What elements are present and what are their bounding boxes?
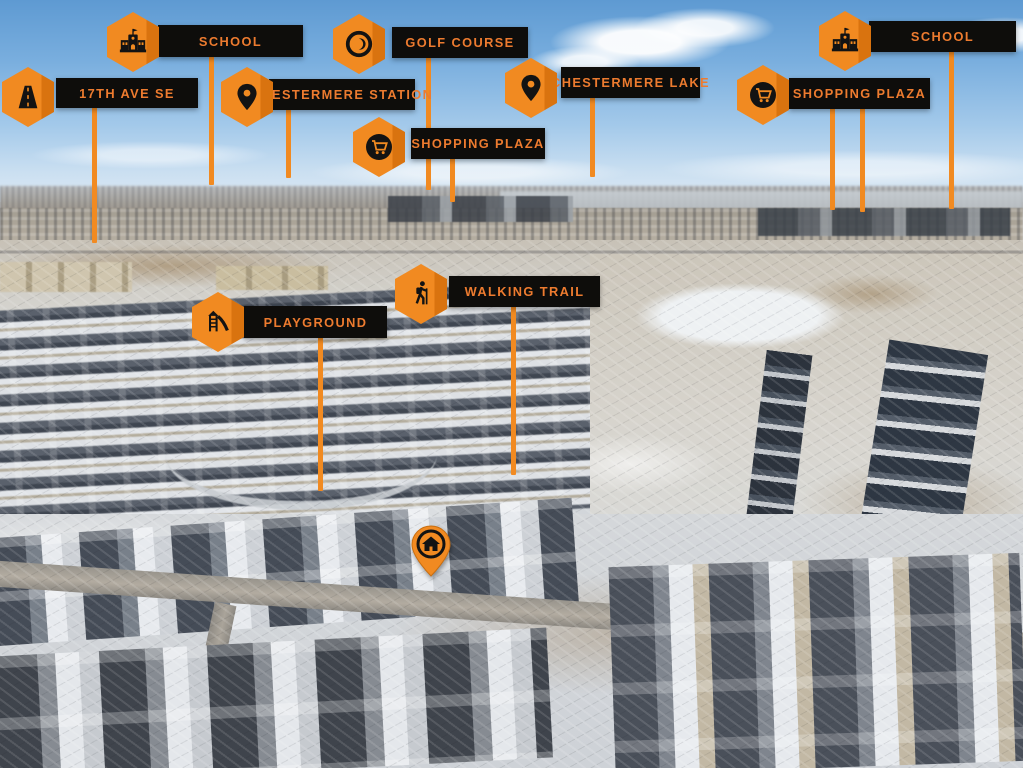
label-text: CHESTERMERE STATION <box>251 87 434 102</box>
label-golf-course: GOLF COURSE <box>392 27 528 58</box>
label-shopping-plaza-mid: SHOPPING PLAZA <box>411 128 545 159</box>
leader-line <box>511 305 516 475</box>
leader-line <box>318 336 323 491</box>
label-shopping-plaza-right: SHOPPING PLAZA <box>789 78 930 109</box>
leader-line <box>860 107 865 212</box>
curved-street <box>165 398 437 510</box>
label-text: SHOPPING PLAZA <box>411 136 544 151</box>
label-text: CHESTERMERE LAKE <box>551 75 710 90</box>
leader-line <box>450 157 455 202</box>
leader-line <box>949 50 954 209</box>
label-walking-trail: WALKING TRAIL <box>449 276 600 307</box>
label-text: 17TH AVE SE <box>79 86 175 101</box>
label-text: SCHOOL <box>199 34 262 49</box>
leader-line <box>92 106 97 243</box>
apartment-blocks <box>216 266 328 290</box>
label-text: PLAYGROUND <box>264 315 368 330</box>
label-text: SHOPPING PLAZA <box>793 86 926 101</box>
distant-plaza-buildings <box>758 208 1010 236</box>
label-chestermere-lake: CHESTERMERE LAKE <box>561 67 700 98</box>
home-pin-icon <box>408 524 454 580</box>
label-text: WALKING TRAIL <box>465 284 585 299</box>
leader-line <box>590 96 595 177</box>
leader-line <box>286 108 291 178</box>
label-17th-ave-se: 17TH AVE SE <box>56 78 198 108</box>
label-school-right: SCHOOL <box>869 21 1016 52</box>
distant-plaza-buildings <box>388 196 573 222</box>
aerial-marketing-image: SCHOOL GOLF COURSE <box>0 0 1023 768</box>
leader-line <box>830 107 835 210</box>
label-text: GOLF COURSE <box>405 35 514 50</box>
house-row <box>608 553 1023 768</box>
label-chestermere-station: CHESTERMERE STATION <box>269 79 415 110</box>
leader-line <box>426 56 431 190</box>
apartment-blocks <box>0 262 132 292</box>
leader-line <box>209 55 214 185</box>
label-school-left: SCHOOL <box>158 25 303 57</box>
distant-lake <box>500 191 1023 209</box>
label-playground: PLAYGROUND <box>244 306 387 338</box>
label-text: SCHOOL <box>911 29 974 44</box>
